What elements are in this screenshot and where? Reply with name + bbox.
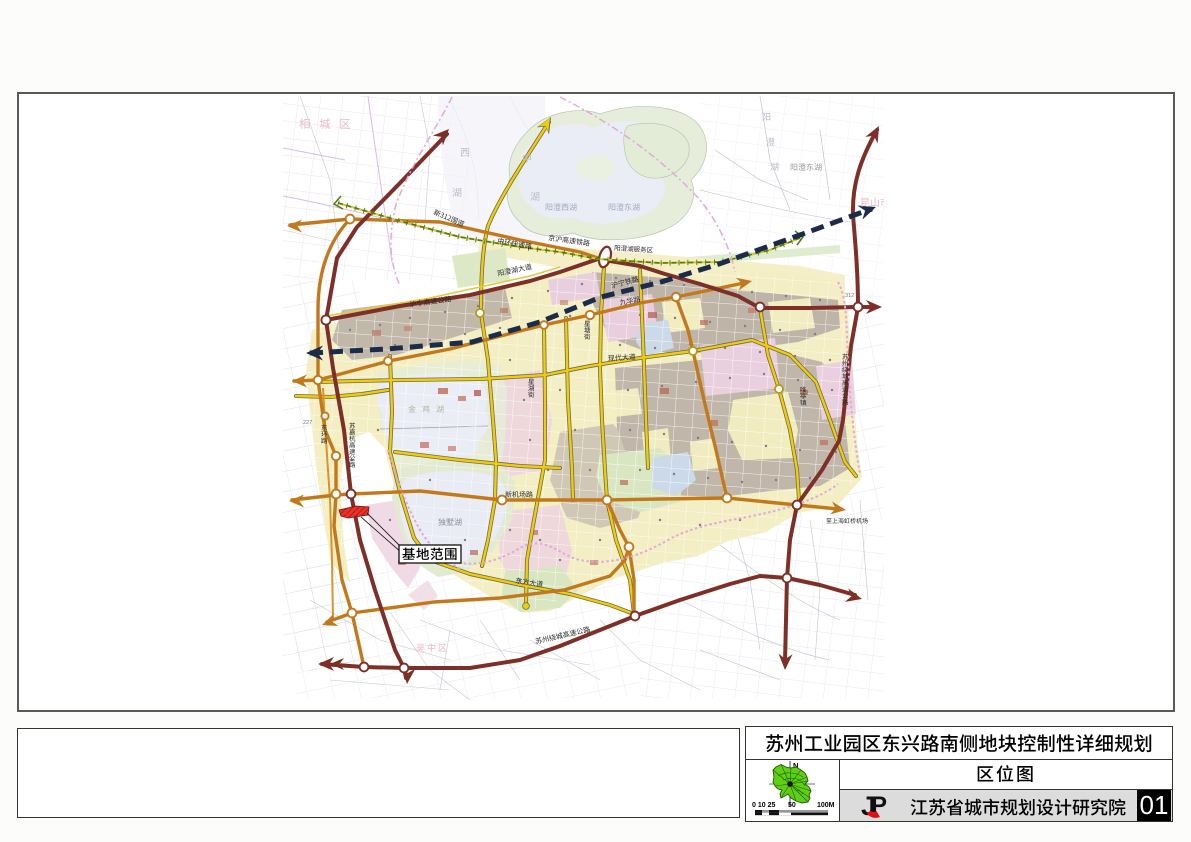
- svg-text:0 10 25: 0 10 25: [752, 802, 775, 809]
- svg-text:227: 227: [303, 420, 312, 426]
- svg-text:100M: 100M: [817, 802, 835, 809]
- svg-text:312: 312: [845, 293, 854, 299]
- svg-text:50: 50: [788, 802, 796, 809]
